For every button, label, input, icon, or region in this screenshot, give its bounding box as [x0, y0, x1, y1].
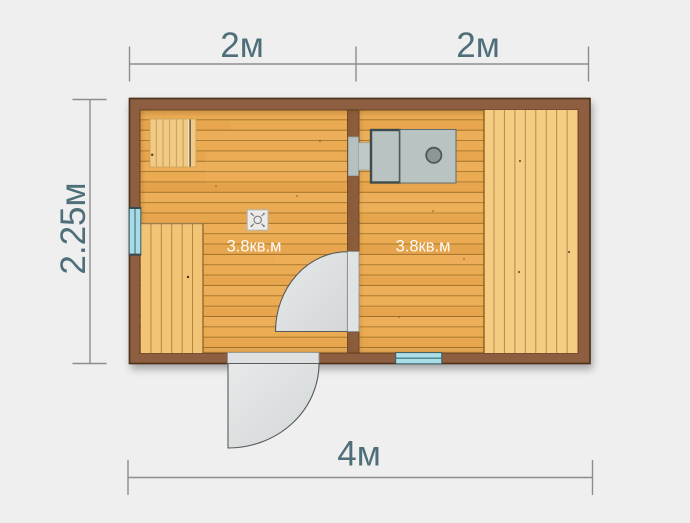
svg-text:2м: 2м: [456, 26, 500, 65]
svg-text:4м: 4м: [337, 435, 381, 474]
svg-text:3.8кв.м: 3.8кв.м: [227, 238, 282, 256]
svg-text:2м: 2м: [220, 26, 264, 65]
svg-text:2.25м: 2.25м: [54, 182, 93, 274]
svg-text:3.8кв.м: 3.8кв.м: [396, 238, 451, 256]
